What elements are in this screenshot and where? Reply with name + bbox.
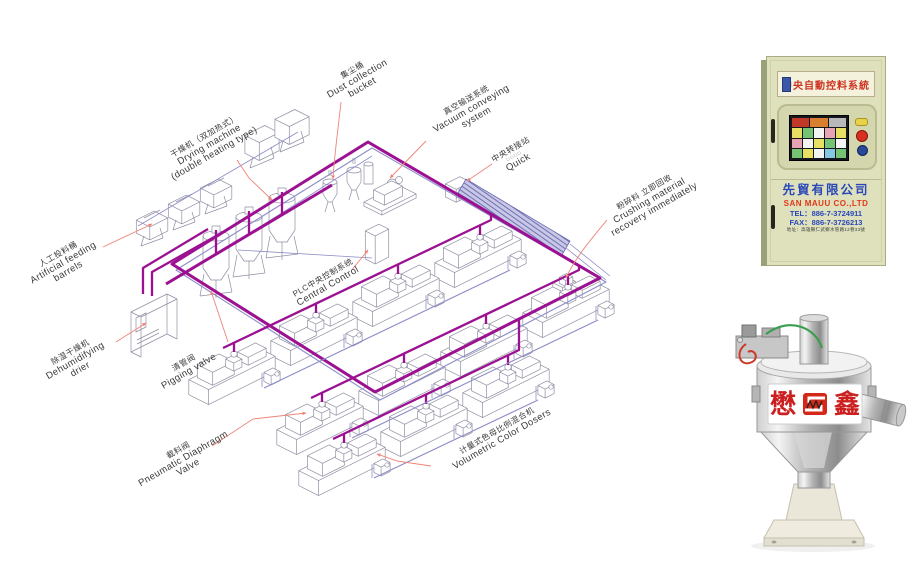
vacuum-pump-station [364, 162, 416, 215]
feeder-unit [245, 126, 279, 169]
molding-machine [353, 264, 444, 327]
pedestal-column [786, 484, 842, 520]
molding-machine [189, 342, 280, 405]
door-handle-upper [771, 119, 775, 143]
cabinet-nameplate: 中央自動控料系統 [777, 71, 875, 97]
logo-char-right: 鑫 [834, 389, 860, 419]
pedestal-base [764, 520, 864, 538]
hopper-loader-photo: 懋 鑫 [716, 306, 908, 554]
cabinet-side-shadow [761, 60, 767, 266]
clamp-left [752, 386, 760, 402]
door-handle-lower [771, 205, 775, 229]
red-pushbutton [856, 130, 868, 142]
logo-char-left: 懋 [770, 389, 796, 419]
company-fax: FAX：886-7-3726213 [767, 218, 885, 227]
cabinet-company-block: 先貿有限公司 SAN MAUU CO.,LTD TEL：886-7-372491… [767, 183, 885, 233]
central-conveying-diagram [0, 0, 730, 562]
company-name-en: SAN MAUU CO.,LTD [767, 199, 885, 209]
molding-machines-group [189, 225, 614, 496]
feeding-barrel [136, 210, 168, 246]
company-name-zh: 先貿有限公司 [767, 183, 885, 199]
company-tel: TEL：886-7-3724911 [767, 209, 885, 218]
screen-bezel [777, 104, 877, 170]
dehumidifier-cabinet [131, 294, 177, 357]
nameplate-logo [782, 77, 791, 92]
touchscreen [789, 115, 849, 161]
feeder-unit [275, 110, 309, 153]
company-address: 地址：高雄縣仁武鄉水管路12巷33號 [767, 227, 885, 233]
inlet-pipe-top [800, 318, 828, 364]
blue-pushbutton [857, 145, 868, 156]
feeding-barrel [200, 178, 232, 214]
control-cabinet-photo: 中央自動控料系統 先貿有限公司 SAN MAUU CO.,LTD TEL：886… [766, 56, 886, 266]
brand-s-logo [803, 393, 827, 415]
indicator-lamp [855, 118, 868, 126]
brand-plate: 懋 鑫 [768, 384, 862, 424]
molding-machine [435, 225, 526, 288]
screenshot-root: 干燥机（双加热式） Drying machine (double heating… [0, 0, 912, 562]
